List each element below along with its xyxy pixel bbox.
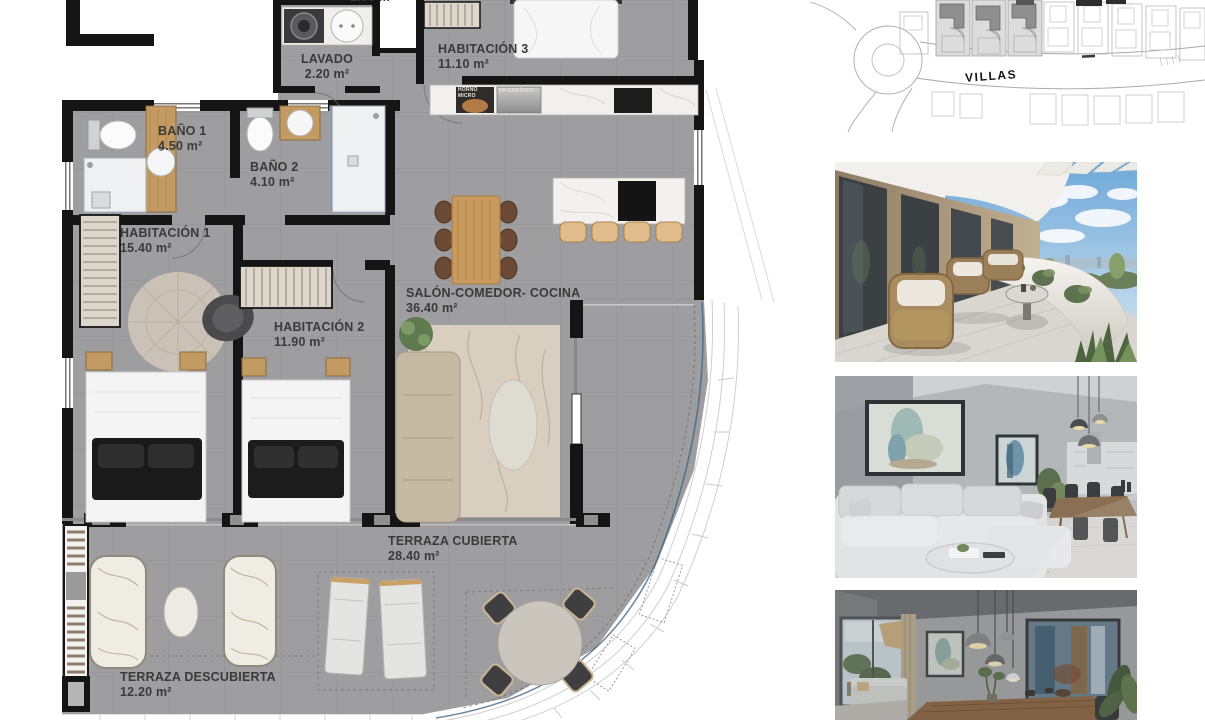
room-name: TERRAZA CUBIERTA xyxy=(388,534,518,549)
room-area: 4.50 m² xyxy=(158,139,206,154)
dining-set xyxy=(435,196,517,284)
room-name: HABITACIÓN 3 xyxy=(438,42,528,57)
room-area: 15.40 m² xyxy=(120,241,210,256)
room-area: 28.40 m² xyxy=(388,549,518,564)
room-label-terraza-cubierta: TERRAZA CUBIERTA 28.40 m² xyxy=(388,534,518,564)
room-name: TERRAZA DESCUBIERTA xyxy=(120,670,276,685)
room-area: 12.20 m² xyxy=(120,685,276,700)
room-label-bano2: BAÑO 2 4.10 m² xyxy=(250,160,298,190)
room-name: HABITACIÓN 1 xyxy=(120,226,210,241)
room-label-bano1: BAÑO 1 4.50 m² xyxy=(158,124,206,154)
site-plan-drawing xyxy=(780,0,1205,132)
appliance-label-fridge: FRIGORÍFICO xyxy=(499,89,543,95)
room-label-salon: SALÓN-COMEDOR- COCINA 36.40 m² xyxy=(406,286,580,316)
room-label-terraza-descubierta: TERRAZA DESCUBIERTA 12.20 m² xyxy=(120,670,276,700)
photo-dining-area-render xyxy=(835,590,1137,720)
photo-terrace-render xyxy=(835,162,1137,362)
room-label-partial-top: 2.00 m xyxy=(350,0,390,5)
terrace-render xyxy=(835,162,1137,362)
site-plan: VILLAS xyxy=(780,0,1205,132)
room-area: 11.90 m² xyxy=(274,335,364,350)
room-area: 2.20 m² xyxy=(287,67,367,82)
dining-area-render xyxy=(835,590,1137,720)
room-name: SALÓN-COMEDOR- COCINA xyxy=(406,286,580,301)
room-area: 11.10 m² xyxy=(438,57,528,72)
appliance-label-oven: HORNO MICRO xyxy=(458,88,494,100)
room-label-habitacion2: HABITACIÓN 2 11.90 m² xyxy=(274,320,364,350)
room-name: BAÑO 1 xyxy=(158,124,206,139)
room-area: 36.40 m² xyxy=(406,301,580,316)
exterior-notch xyxy=(380,0,416,52)
street-name-micro-label xyxy=(1082,55,1095,58)
room-name: HABITACIÓN 2 xyxy=(274,320,364,335)
artwork-large xyxy=(867,402,963,474)
floor-plan: LAVADO 2.20 m² HABITACIÓN 3 11.10 m² BAÑ… xyxy=(0,0,790,720)
villas-road-label: VILLAS xyxy=(965,68,1018,84)
brochure-page: LAVADO 2.20 m² HABITACIÓN 3 11.10 m² BAÑ… xyxy=(0,0,1205,720)
photo-living-room-render xyxy=(835,376,1137,578)
artwork-small xyxy=(997,436,1037,484)
room-name: BAÑO 2 xyxy=(250,160,298,175)
room-area: 4.10 m² xyxy=(250,175,298,190)
floor-plan-drawing xyxy=(0,0,790,720)
room-label-lavado: LAVADO 2.20 m² xyxy=(287,52,367,82)
laundry-fixtures xyxy=(282,7,372,45)
room-name: LAVADO xyxy=(287,52,367,67)
living-room-render xyxy=(835,376,1137,578)
highlighted-villas xyxy=(936,0,1042,56)
coffee-table xyxy=(926,543,1014,573)
living-room-furniture xyxy=(396,317,560,522)
room-label-habitacion3: HABITACIÓN 3 11.10 m² xyxy=(438,42,528,72)
room-label-habitacion1: HABITACIÓN 1 15.40 m² xyxy=(120,226,210,256)
